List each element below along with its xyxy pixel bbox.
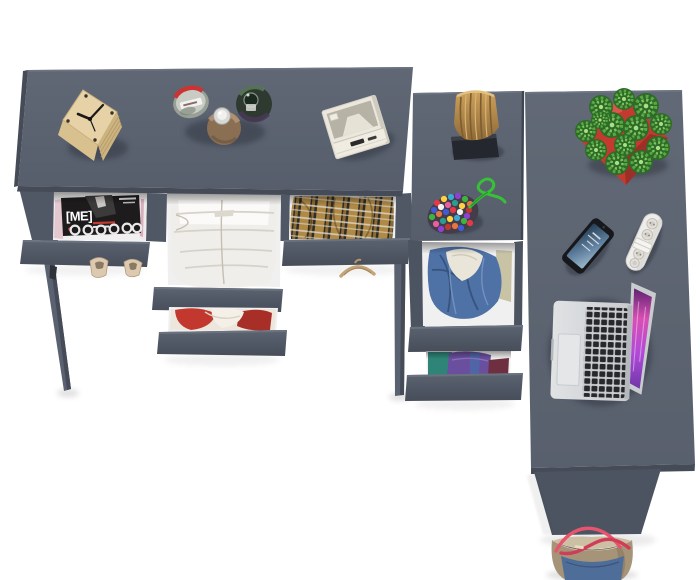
drawer-denim-jacket xyxy=(422,242,515,327)
corner-unit xyxy=(405,91,523,401)
laptop-base xyxy=(549,301,632,402)
drawer-front-3 xyxy=(282,238,410,266)
product-photo: [ME] xyxy=(0,0,700,580)
perfume-bottle-dark xyxy=(236,86,272,122)
drawer-red-clothes xyxy=(168,307,278,333)
right-desk xyxy=(525,88,695,535)
drawer-magazines: [ME] xyxy=(53,192,147,241)
drawer-front-2b xyxy=(157,330,287,356)
right-desk-side-panel xyxy=(534,469,661,535)
cabinet-frame-left xyxy=(19,188,58,241)
scene-canvas: [ME] xyxy=(0,0,700,580)
laptop-trackpad xyxy=(557,334,581,386)
corner-drawer-front-2 xyxy=(405,373,523,401)
folded-white-trousers xyxy=(171,197,278,288)
cabinet-divider-1 xyxy=(146,193,167,242)
cabinet-frame-right xyxy=(395,193,413,242)
log xyxy=(454,92,499,141)
corner-drawer-front-1 xyxy=(408,325,523,352)
cabinet-divider-2 xyxy=(280,195,290,241)
drawer-white-clothes xyxy=(167,193,281,288)
magazine-title: [ME] xyxy=(66,208,93,224)
drawer-plaid-shirt xyxy=(289,194,396,242)
